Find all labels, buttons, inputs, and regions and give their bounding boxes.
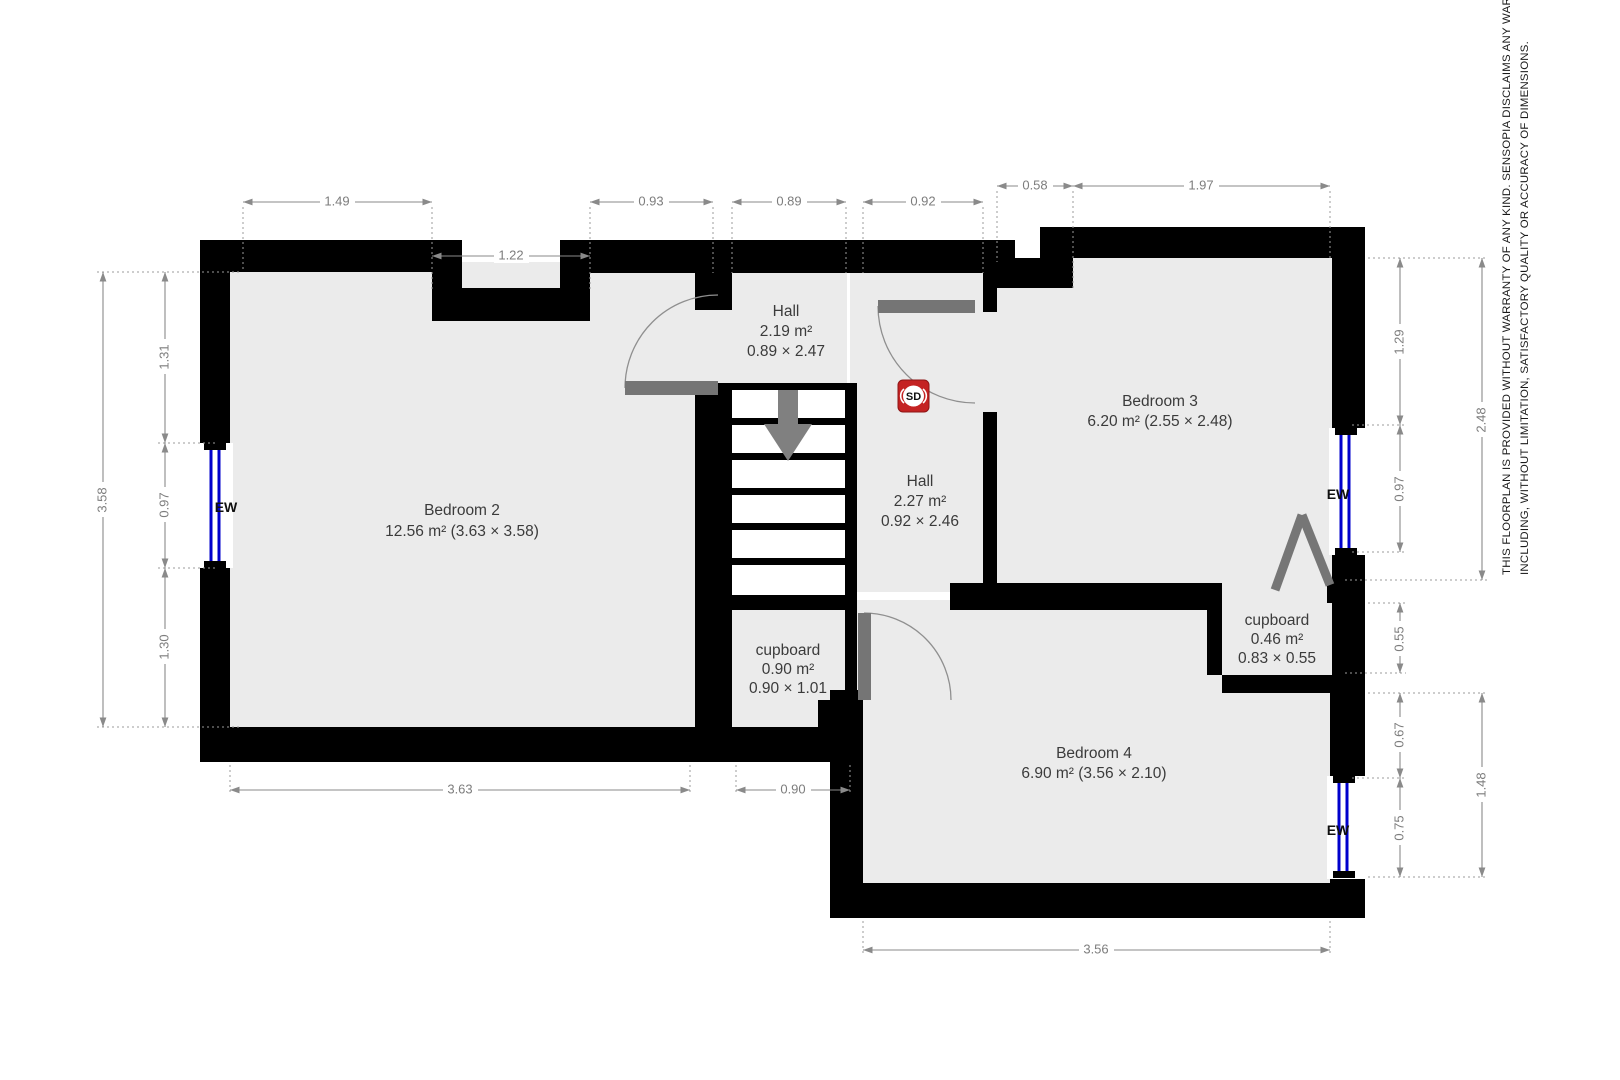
dim-left-1: 3.58 bbox=[94, 272, 110, 727]
svg-text:0.75: 0.75 bbox=[1391, 815, 1406, 840]
smoke-detector-label: SD bbox=[906, 391, 921, 403]
svg-text:2.48: 2.48 bbox=[1473, 407, 1488, 432]
window-label-left: EW bbox=[215, 499, 238, 515]
window-label-right-top: EW bbox=[1327, 486, 1350, 502]
svg-text:0.97: 0.97 bbox=[1391, 476, 1406, 501]
svg-text:0.89: 0.89 bbox=[776, 193, 801, 208]
dim-right-1: 1.29 bbox=[1391, 258, 1407, 425]
svg-text:0.92: 0.92 bbox=[910, 193, 935, 208]
dim-right-5: 0.67 bbox=[1391, 693, 1407, 778]
disclaimer-line-2: INCLUDING, WITHOUT LIMITATION, SATISFACT… bbox=[1519, 41, 1531, 575]
dim-left-4: 1.30 bbox=[156, 568, 172, 727]
cupboard-1-name: cupboard bbox=[756, 642, 821, 659]
dim-bottom-3: 3.56 bbox=[863, 941, 1330, 957]
svg-text:1.30: 1.30 bbox=[156, 634, 171, 659]
cupboard-1-size: 0.90 × 1.01 bbox=[749, 680, 827, 697]
svg-text:3.58: 3.58 bbox=[94, 487, 109, 512]
dim-top-7: 1.97 bbox=[1073, 177, 1330, 193]
dim-top-6: 0.58 bbox=[997, 177, 1073, 193]
cupboard-2-area: 0.46 m² bbox=[1251, 631, 1304, 648]
smoke-detector-icon: SD bbox=[898, 380, 929, 412]
dim-bottom-1: 3.63 bbox=[230, 781, 690, 797]
svg-text:1.29: 1.29 bbox=[1391, 329, 1406, 354]
svg-text:0.58: 0.58 bbox=[1022, 177, 1047, 192]
svg-text:3.63: 3.63 bbox=[447, 781, 472, 796]
hall-mid-size: 0.92 × 2.46 bbox=[881, 513, 959, 530]
disclaimer-line-1: THIS FLOORPLAN IS PROVIDED WITHOUT WARRA… bbox=[1501, 0, 1513, 575]
floorplan-drawing: SD Bedroom 2 12.56 m² (3.63 × 3.58) Hall… bbox=[0, 0, 1620, 1080]
floor-doorway-bedroom-2 bbox=[695, 305, 735, 387]
dim-top-3: 0.93 bbox=[590, 193, 713, 209]
bedroom-4-area: 6.90 m² (3.56 × 2.10) bbox=[1021, 765, 1166, 782]
svg-text:0.93: 0.93 bbox=[638, 193, 663, 208]
cupboard-1-area: 0.90 m² bbox=[762, 661, 815, 678]
svg-text:1.22: 1.22 bbox=[498, 247, 523, 262]
dim-top-4: 0.89 bbox=[732, 193, 846, 209]
staircase bbox=[732, 383, 845, 595]
bedroom-3-name: Bedroom 3 bbox=[1122, 393, 1198, 410]
hall-top-size: 0.89 × 2.47 bbox=[747, 343, 825, 360]
hall-mid-area: 2.27 m² bbox=[894, 493, 947, 510]
dim-top-1: 1.49 bbox=[243, 193, 432, 209]
dim-left-3: 0.97 bbox=[156, 443, 172, 568]
dim-right-3: 2.48 bbox=[1473, 258, 1489, 580]
floor-doorway-bedroom-3 bbox=[980, 308, 1000, 416]
svg-text:1.49: 1.49 bbox=[324, 193, 349, 208]
svg-text:0.55: 0.55 bbox=[1391, 626, 1406, 651]
cupboard-2-name: cupboard bbox=[1245, 612, 1310, 629]
bedroom-2-area: 12.56 m² (3.63 × 3.58) bbox=[385, 523, 539, 540]
svg-text:1.48: 1.48 bbox=[1473, 772, 1488, 797]
hall-top-area: 2.19 m² bbox=[760, 323, 813, 340]
dim-right-2: 0.97 bbox=[1391, 425, 1407, 552]
bedroom-3-area: 6.20 m² (2.55 × 2.48) bbox=[1087, 413, 1232, 430]
dim-right-4: 0.55 bbox=[1391, 603, 1407, 673]
svg-text:1.31: 1.31 bbox=[156, 344, 171, 369]
bedroom-4-name: Bedroom 4 bbox=[1056, 745, 1132, 762]
bedroom-2-name: Bedroom 2 bbox=[424, 502, 500, 519]
hall-mid-name: Hall bbox=[907, 473, 934, 490]
svg-text:0.97: 0.97 bbox=[156, 492, 171, 517]
floorplan-page: SD Bedroom 2 12.56 m² (3.63 × 3.58) Hall… bbox=[0, 0, 1620, 1080]
svg-text:0.67: 0.67 bbox=[1391, 722, 1406, 747]
dim-left-2: 1.31 bbox=[156, 272, 172, 443]
svg-text:0.90: 0.90 bbox=[780, 781, 805, 796]
window-label-right-bottom: EW bbox=[1327, 822, 1350, 838]
dim-right-7: 1.48 bbox=[1473, 693, 1489, 877]
svg-text:1.97: 1.97 bbox=[1188, 177, 1213, 192]
dim-top-5: 0.92 bbox=[863, 193, 983, 209]
cupboard-2-size: 0.83 × 0.55 bbox=[1238, 650, 1316, 667]
disclaimer: THIS FLOORPLAN IS PROVIDED WITHOUT WARRA… bbox=[1501, 0, 1531, 575]
svg-text:3.56: 3.56 bbox=[1083, 941, 1108, 956]
floor-bedroom-2 bbox=[220, 262, 700, 737]
hall-top-name: Hall bbox=[773, 303, 800, 320]
dim-right-6: 0.75 bbox=[1391, 778, 1407, 877]
